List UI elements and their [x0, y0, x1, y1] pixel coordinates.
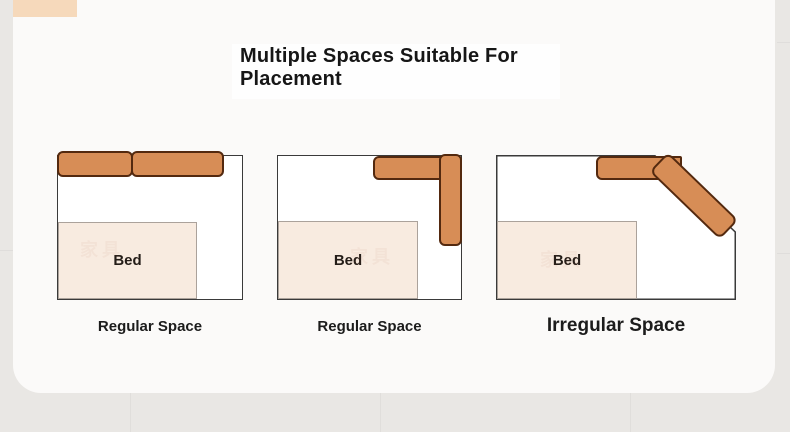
bed-label: Bed [553, 252, 581, 269]
bed-regular-2: Bed [278, 221, 418, 299]
caption-regular-2: Regular Space [277, 318, 462, 335]
page-title: Multiple Spaces Suitable For Placement [240, 45, 580, 91]
page-title-line2: Placement [240, 68, 342, 90]
background-seam [0, 250, 13, 251]
background-seam [630, 393, 631, 432]
caption-irregular: Irregular Space [496, 315, 736, 337]
sofa-piece-left [57, 151, 133, 177]
caption-regular-1: Regular Space [57, 318, 243, 335]
page-title-line1: Multiple Spaces Suitable For [240, 45, 518, 67]
bed-label: Bed [334, 252, 362, 269]
sofa-piece-right [131, 151, 224, 177]
background-seam [380, 393, 381, 432]
background-seam [777, 42, 790, 43]
sofa-piece-vertical [439, 154, 462, 246]
bed-irregular: Bed [497, 221, 637, 299]
background-seam [130, 393, 131, 432]
bed-regular-1: Bed [58, 222, 197, 299]
background-seam [777, 253, 790, 254]
sofa-piece-horizontal [373, 156, 443, 180]
accent-corner-square [13, 0, 77, 17]
bed-label: Bed [113, 252, 141, 269]
